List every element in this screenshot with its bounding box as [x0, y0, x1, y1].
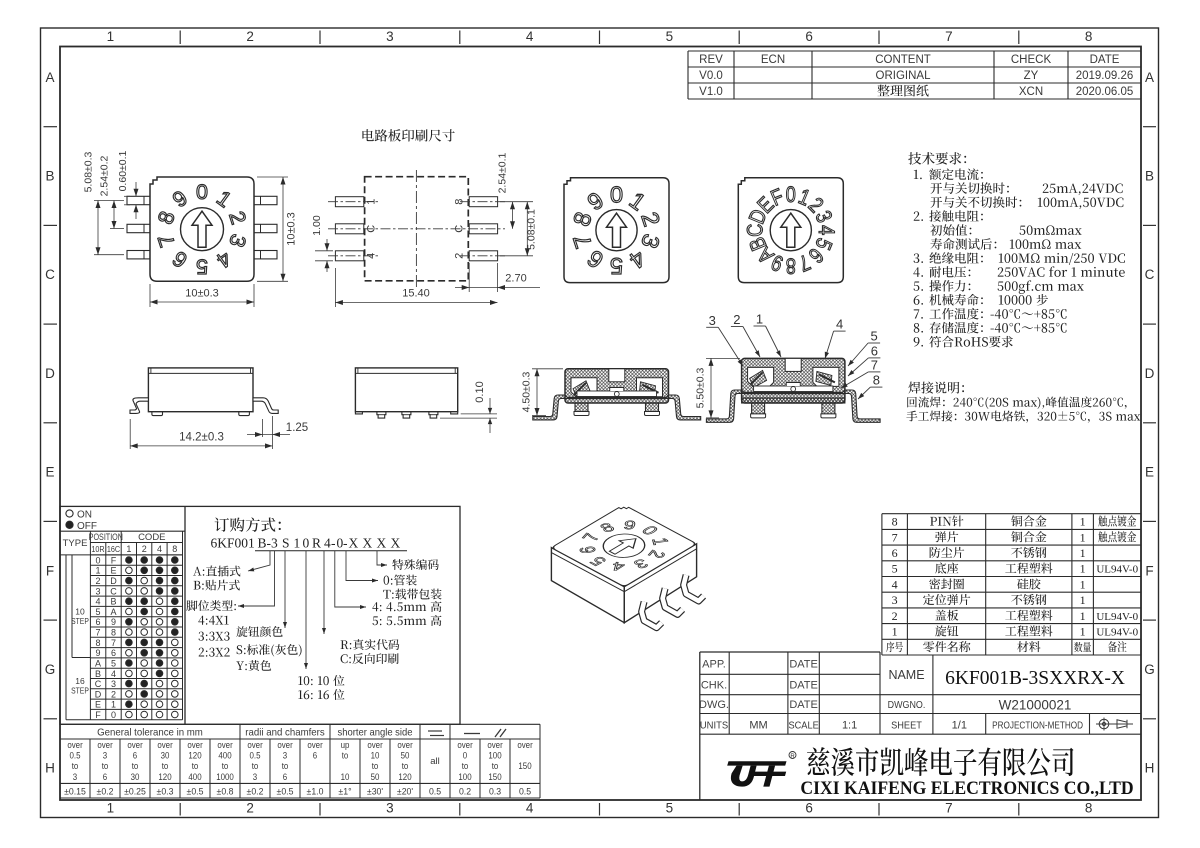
svg-text:3: 3 — [892, 593, 898, 607]
svg-text:APP.: APP. — [702, 659, 726, 671]
svg-text:±0.3: ±0.3 — [157, 786, 174, 796]
svg-text:to: to — [342, 750, 349, 761]
svg-text:X: X — [349, 536, 359, 551]
svg-text:3: 3 — [709, 313, 716, 328]
svg-text:0: 0 — [196, 180, 208, 204]
svg-text:over: over — [247, 740, 263, 751]
svg-text:A: A — [1145, 70, 1154, 85]
svg-text:120: 120 — [158, 771, 172, 782]
svg-text:±0.15: ±0.15 — [64, 786, 86, 796]
svg-text:F: F — [95, 710, 101, 720]
svg-text:B: B — [45, 169, 54, 184]
svg-text:8: 8 — [454, 199, 466, 205]
svg-text:10: 10 — [371, 750, 380, 761]
svg-text:UL94V-0: UL94V-0 — [1096, 564, 1138, 576]
svg-text:0: 0 — [95, 555, 100, 565]
svg-text:C: C — [1145, 267, 1155, 282]
svg-text:8: 8 — [873, 373, 880, 388]
svg-text:1: 1 — [294, 536, 301, 551]
svg-text:9: 9 — [95, 648, 100, 658]
svg-text:1:1: 1:1 — [842, 720, 857, 732]
svg-text:CHECK: CHECK — [1011, 54, 1052, 66]
svg-text:3: 3 — [73, 771, 78, 782]
svg-text:UNITS: UNITS — [700, 720, 729, 732]
svg-text:D: D — [95, 689, 102, 699]
svg-text:F: F — [46, 563, 54, 578]
svg-text:1: 1 — [1080, 625, 1086, 639]
svg-text:2.54±0.1: 2.54±0.1 — [497, 152, 509, 193]
svg-text:4: 4 — [111, 669, 116, 679]
svg-text:4: 4 — [814, 225, 838, 235]
svg-text:3: 3 — [103, 750, 108, 761]
svg-text:±1°: ±1° — [338, 786, 351, 796]
svg-text:C: C — [110, 586, 117, 596]
svg-text:over: over — [97, 740, 113, 751]
svg-text:±30': ±30' — [367, 786, 383, 796]
svg-text:E: E — [110, 566, 116, 576]
svg-text:over: over — [307, 740, 323, 751]
svg-text:C: C — [45, 267, 55, 282]
svg-text:NAME: NAME — [888, 668, 924, 682]
svg-text:UL94V-0: UL94V-0 — [1096, 627, 1138, 639]
svg-text:2.54±0.2: 2.54±0.2 — [99, 155, 111, 196]
svg-text:to: to — [72, 761, 79, 772]
svg-text:all: all — [430, 756, 440, 767]
svg-text:5.08±0.1: 5.08±0.1 — [526, 209, 538, 250]
svg-text:6: 6 — [283, 771, 288, 782]
svg-text:5: 5 — [666, 801, 674, 816]
svg-text:0: 0 — [303, 536, 310, 551]
svg-text:REV: REV — [699, 54, 723, 66]
svg-text:3: 3 — [253, 771, 258, 782]
svg-text:4: 4 — [157, 544, 162, 554]
svg-text:A: A — [95, 658, 101, 668]
svg-text:150: 150 — [518, 761, 532, 772]
svg-text:ORIGINAL: ORIGINAL — [876, 70, 932, 82]
svg-text:CIXI KAIFENG ELECTRONICS CO.,L: CIXI KAIFENG ELECTRONICS CO.,LTD — [800, 777, 1133, 798]
svg-text:150: 150 — [488, 771, 502, 782]
svg-text:0.10: 0.10 — [474, 381, 486, 402]
svg-text:10R: 10R — [91, 544, 105, 554]
svg-text:W21000021: W21000021 — [999, 698, 1072, 713]
svg-text:8: 8 — [172, 544, 177, 554]
svg-text:4: 4 — [526, 29, 534, 44]
svg-text:B: B — [110, 597, 116, 607]
svg-text:shorter angle side: shorter angle side — [338, 727, 413, 739]
svg-text:over: over — [457, 740, 473, 751]
svg-text:1: 1 — [756, 312, 763, 327]
svg-text:1000: 1000 — [216, 771, 234, 782]
svg-text:1: 1 — [1080, 593, 1086, 607]
svg-text:100: 100 — [458, 771, 472, 782]
svg-text:4: 4 — [324, 536, 331, 551]
svg-text:4.50±0.3: 4.50±0.3 — [521, 371, 533, 412]
svg-text:3: 3 — [283, 750, 288, 761]
svg-text:C: C — [95, 679, 102, 689]
svg-text:A: A — [45, 70, 54, 85]
svg-text:to: to — [402, 761, 409, 772]
svg-text:SHEET: SHEET — [891, 720, 922, 732]
svg-text:6: 6 — [313, 750, 318, 761]
svg-text:CODE: CODE — [138, 532, 165, 543]
svg-text:0.3: 0.3 — [489, 786, 501, 796]
svg-text:to: to — [492, 761, 499, 772]
svg-text:CHK.: CHK. — [701, 680, 727, 692]
svg-text:5.08±0.3: 5.08±0.3 — [83, 151, 95, 192]
svg-text:50: 50 — [371, 771, 380, 782]
svg-text:F: F — [1145, 563, 1153, 578]
svg-text:10: 10 — [341, 771, 350, 782]
svg-text:ON: ON — [77, 510, 92, 521]
svg-text:0: 0 — [463, 750, 468, 761]
svg-text:5: 5 — [95, 607, 100, 617]
svg-text:2: 2 — [454, 253, 466, 259]
svg-text:10±0.3: 10±0.3 — [185, 288, 219, 300]
svg-text:1: 1 — [111, 700, 116, 710]
svg-text:over: over — [487, 740, 503, 751]
svg-text:7: 7 — [945, 29, 953, 44]
svg-text:2.70: 2.70 — [505, 273, 526, 285]
svg-text:XCN: XCN — [1019, 86, 1043, 98]
svg-text:6: 6 — [805, 29, 813, 44]
svg-text:±0.8: ±0.8 — [217, 786, 234, 796]
svg-text:6KF001: 6KF001 — [211, 536, 255, 551]
svg-text:3: 3 — [95, 586, 100, 596]
svg-text:3: 3 — [111, 679, 116, 689]
svg-text:7: 7 — [111, 638, 116, 648]
svg-text:7: 7 — [95, 628, 100, 638]
svg-text:1: 1 — [1080, 546, 1086, 560]
svg-text:SCALE: SCALE — [788, 720, 819, 732]
svg-text:to: to — [252, 761, 259, 772]
svg-text:8: 8 — [1085, 29, 1093, 44]
svg-text:over: over — [277, 740, 293, 751]
svg-text:1: 1 — [107, 801, 115, 816]
svg-text:DATE: DATE — [789, 659, 818, 671]
svg-text:over: over — [127, 740, 143, 751]
svg-text:6: 6 — [871, 343, 878, 358]
svg-text:400: 400 — [218, 750, 232, 761]
svg-text:over: over — [517, 740, 533, 751]
svg-text:4: 4 — [892, 577, 898, 591]
svg-text:to: to — [162, 761, 169, 772]
svg-text:6: 6 — [111, 648, 116, 658]
svg-text:30: 30 — [161, 750, 170, 761]
svg-text:5: 5 — [111, 658, 116, 668]
svg-text:50: 50 — [401, 750, 410, 761]
svg-text:8: 8 — [111, 628, 116, 638]
svg-text:DATE: DATE — [789, 699, 818, 711]
svg-text:-: - — [331, 536, 336, 551]
svg-text:H: H — [1145, 761, 1155, 776]
svg-text:3: 3 — [386, 29, 394, 44]
svg-text:R: R — [790, 754, 795, 760]
svg-text:H: H — [45, 761, 55, 776]
svg-text:POSITION: POSITION — [89, 532, 123, 542]
svg-text:CONTENT: CONTENT — [875, 54, 931, 66]
svg-text:5: 5 — [610, 253, 623, 279]
svg-text:6: 6 — [95, 617, 100, 627]
svg-text:2: 2 — [111, 689, 116, 699]
svg-text:2: 2 — [142, 544, 147, 554]
svg-text:TYPE: TYPE — [63, 538, 88, 549]
svg-text:PROJECTION-METHOD: PROJECTION-METHOD — [992, 718, 1083, 730]
svg-text:4: 4 — [95, 597, 100, 607]
svg-text:OFF: OFF — [77, 521, 97, 532]
svg-text:up: up — [341, 740, 350, 751]
svg-text:5: 5 — [666, 29, 674, 44]
svg-text:±0.2: ±0.2 — [247, 786, 264, 796]
svg-text:±0.5: ±0.5 — [187, 786, 204, 796]
svg-text:16C: 16C — [107, 544, 121, 554]
svg-text:STEP: STEP — [71, 616, 89, 626]
svg-text:±20': ±20' — [397, 786, 413, 796]
svg-text:6: 6 — [133, 750, 138, 761]
svg-text:V1.0: V1.0 — [699, 86, 723, 98]
svg-text:to: to — [372, 761, 379, 772]
svg-text:5.50±0.3: 5.50±0.3 — [695, 367, 707, 408]
svg-text:G: G — [1144, 662, 1155, 677]
svg-text:C: C — [454, 225, 466, 233]
svg-text:DATE: DATE — [1090, 54, 1120, 66]
svg-text:2019.09.26: 2019.09.26 — [1076, 70, 1134, 82]
svg-text:over: over — [397, 740, 413, 751]
svg-text:to: to — [132, 761, 139, 772]
svg-text:100: 100 — [488, 750, 502, 761]
svg-text:V0.0: V0.0 — [699, 70, 723, 82]
svg-text:to: to — [102, 761, 109, 772]
svg-text:9: 9 — [111, 617, 116, 627]
svg-text:B: B — [1145, 169, 1154, 184]
svg-text:over: over — [367, 740, 383, 751]
svg-text:1: 1 — [1080, 562, 1086, 576]
svg-text:B: B — [95, 669, 101, 679]
svg-text:1: 1 — [1080, 577, 1086, 591]
svg-text:5: 5 — [196, 254, 208, 278]
svg-text:4: 4 — [836, 317, 843, 332]
svg-text:2: 2 — [246, 801, 254, 816]
svg-text:6: 6 — [805, 801, 813, 816]
svg-text:MM: MM — [749, 720, 767, 732]
svg-text:14.2±0.3: 14.2±0.3 — [179, 432, 224, 444]
svg-text:2: 2 — [246, 29, 254, 44]
svg-text:General tolerance in mm: General tolerance in mm — [97, 727, 203, 738]
svg-text:4: 4 — [366, 253, 378, 259]
svg-text:0.5: 0.5 — [429, 786, 441, 796]
svg-text:8: 8 — [95, 638, 100, 648]
svg-text:8: 8 — [892, 515, 898, 529]
svg-text:1: 1 — [1080, 609, 1086, 623]
svg-text:6: 6 — [892, 546, 898, 560]
svg-text:1: 1 — [126, 544, 131, 554]
svg-text:B-3: B-3 — [258, 536, 279, 551]
svg-text:DWGNO.: DWGNO. — [888, 699, 926, 711]
svg-text:120: 120 — [398, 771, 412, 782]
svg-text:1: 1 — [1080, 530, 1086, 544]
svg-text:0.60±0.1: 0.60±0.1 — [117, 150, 129, 191]
svg-text:D: D — [45, 366, 55, 381]
svg-text:D: D — [1145, 366, 1155, 381]
svg-text:7: 7 — [892, 530, 898, 544]
svg-text:1: 1 — [95, 566, 100, 576]
svg-text:X: X — [391, 536, 401, 551]
svg-text:radii and chamfers: radii and chamfers — [245, 727, 324, 738]
svg-text:6: 6 — [103, 771, 108, 782]
svg-text:F: F — [111, 555, 117, 565]
svg-text:0: 0 — [786, 183, 796, 207]
svg-text:2020.06.05: 2020.06.05 — [1076, 86, 1134, 98]
svg-text:-: - — [343, 536, 348, 551]
svg-text:R: R — [312, 536, 321, 551]
svg-text:A: A — [110, 607, 116, 617]
svg-text:16: 16 — [75, 676, 85, 686]
svg-text:over: over — [187, 740, 203, 751]
svg-text:1.00: 1.00 — [311, 215, 323, 236]
svg-text:2: 2 — [95, 576, 100, 586]
svg-text:D: D — [110, 576, 117, 586]
svg-text:5: 5 — [870, 329, 877, 344]
svg-text:STEP: STEP — [71, 686, 89, 696]
svg-text:to: to — [462, 761, 469, 772]
svg-text:1: 1 — [366, 199, 378, 205]
svg-text:E: E — [95, 700, 101, 710]
svg-text:8: 8 — [786, 253, 796, 277]
svg-text:10: 10 — [75, 607, 85, 617]
svg-text:E: E — [1145, 465, 1154, 480]
svg-text:0.5: 0.5 — [70, 750, 81, 761]
svg-text:0.5: 0.5 — [519, 786, 531, 796]
svg-text:120: 120 — [188, 750, 202, 761]
svg-text:6KF001B-3SXXRX-X: 6KF001B-3SXXRX-X — [945, 668, 1125, 689]
svg-text:±1.0: ±1.0 — [307, 786, 324, 796]
svg-text:1: 1 — [892, 625, 898, 639]
svg-text:1: 1 — [1080, 515, 1086, 529]
svg-text:0.5: 0.5 — [250, 750, 261, 761]
svg-text:to: to — [192, 761, 199, 772]
svg-text:4: 4 — [526, 801, 534, 816]
svg-text:C: C — [366, 225, 378, 233]
svg-text:DWG.: DWG. — [699, 699, 729, 711]
svg-text:over: over — [157, 740, 173, 751]
svg-text:0: 0 — [111, 710, 116, 720]
svg-text:±0.25: ±0.25 — [124, 786, 146, 796]
svg-text:S: S — [282, 536, 290, 551]
svg-text:DATE: DATE — [789, 680, 818, 692]
svg-text:UL94V-0: UL94V-0 — [1096, 611, 1138, 623]
svg-text:E: E — [45, 465, 54, 480]
svg-text:±0.2: ±0.2 — [97, 786, 114, 796]
svg-text:1/1: 1/1 — [952, 720, 967, 732]
svg-text:±0.5: ±0.5 — [277, 786, 294, 796]
svg-text:5: 5 — [892, 562, 898, 576]
svg-text:400: 400 — [188, 771, 202, 782]
svg-text:2: 2 — [892, 609, 898, 623]
svg-text:7: 7 — [945, 801, 953, 816]
svg-text:0: 0 — [610, 181, 623, 207]
svg-text:1.25: 1.25 — [286, 422, 308, 434]
svg-text:to: to — [222, 761, 229, 772]
svg-text:to: to — [282, 761, 289, 772]
svg-text:2: 2 — [733, 312, 740, 327]
svg-text:0.2: 0.2 — [459, 786, 471, 796]
svg-text:15.40: 15.40 — [402, 288, 430, 300]
svg-text:30: 30 — [131, 771, 140, 782]
svg-text:ZY: ZY — [1024, 70, 1039, 82]
svg-text:X: X — [363, 536, 373, 551]
svg-text:1: 1 — [107, 29, 115, 44]
svg-text:over: over — [67, 740, 83, 751]
svg-text:3: 3 — [386, 801, 394, 816]
svg-text:10±0.3: 10±0.3 — [286, 212, 298, 246]
svg-text:7: 7 — [871, 357, 878, 372]
svg-text:X: X — [377, 536, 387, 551]
svg-text:ECN: ECN — [761, 54, 785, 66]
svg-text:8: 8 — [1085, 801, 1093, 816]
svg-text:G: G — [45, 662, 56, 677]
svg-text:over: over — [217, 740, 233, 751]
